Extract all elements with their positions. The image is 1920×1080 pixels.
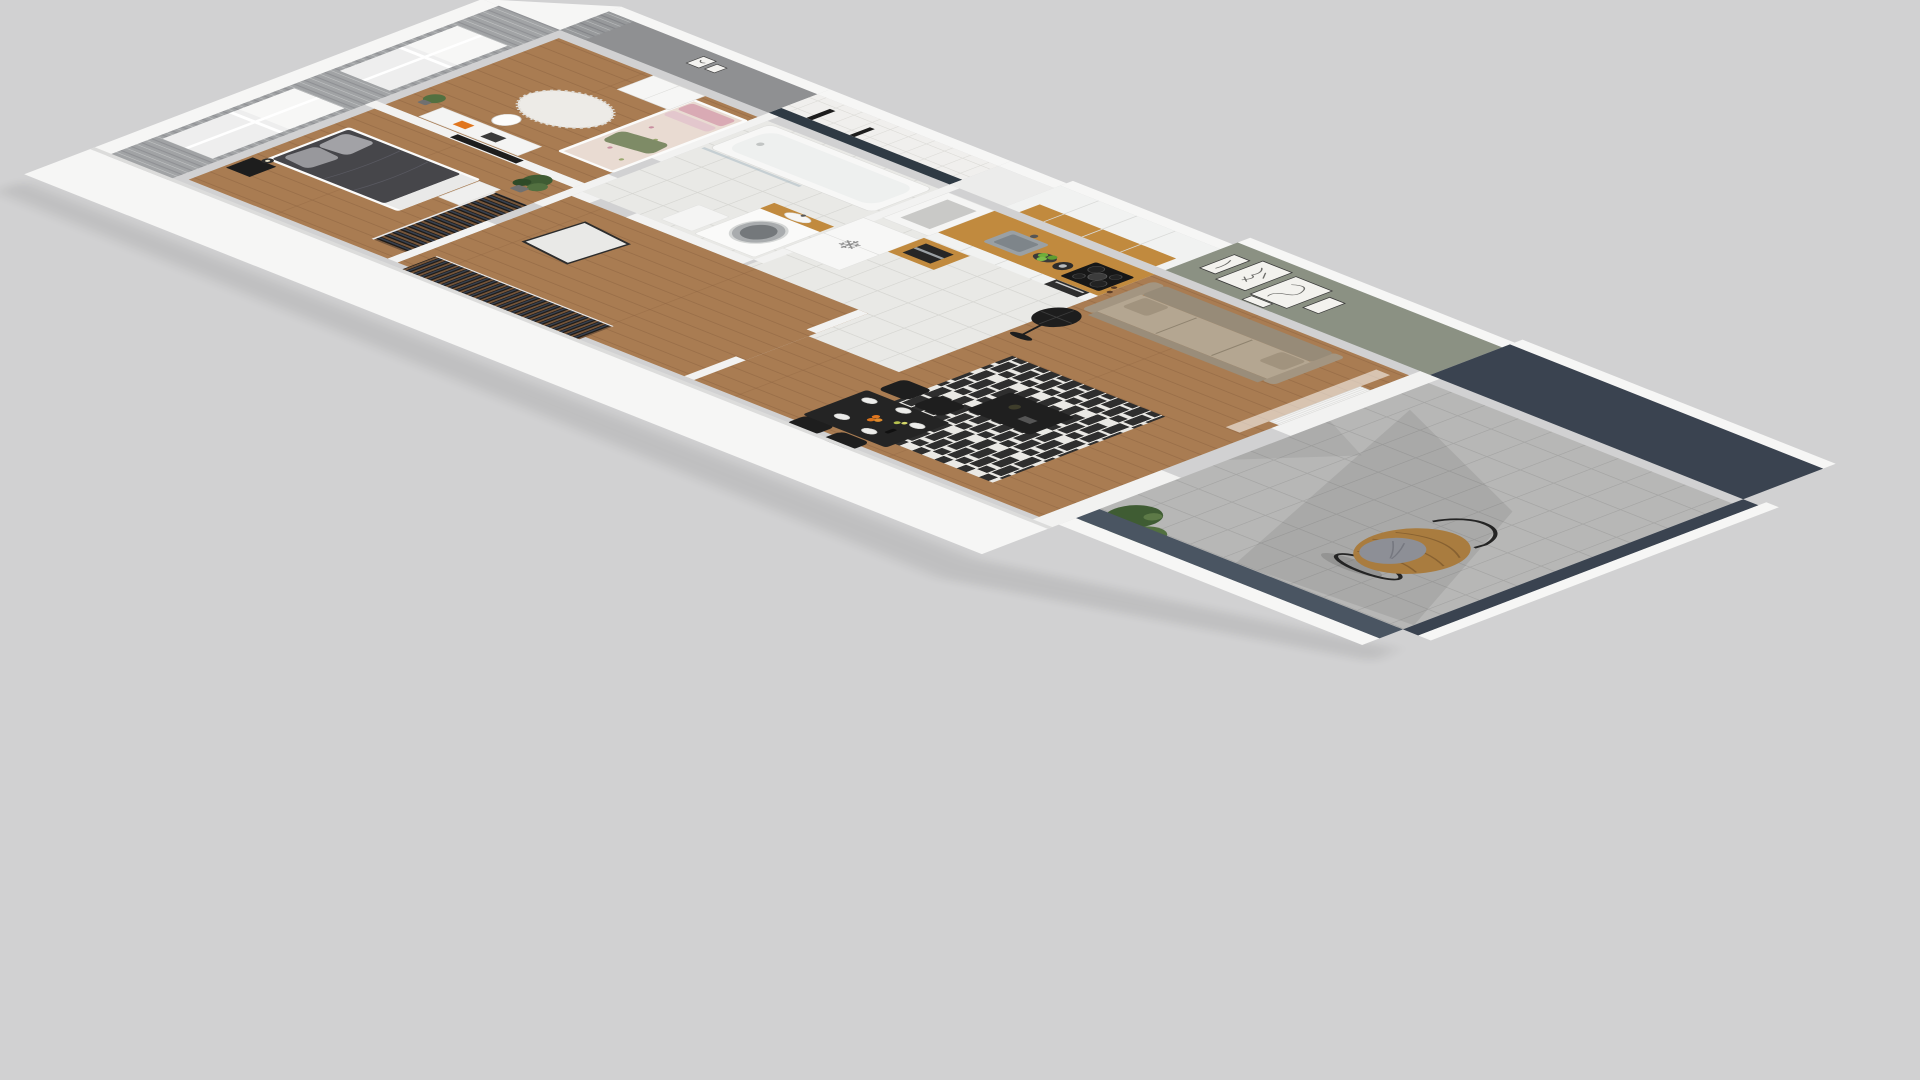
floorplan-render: ❄ [0, 0, 1920, 1080]
